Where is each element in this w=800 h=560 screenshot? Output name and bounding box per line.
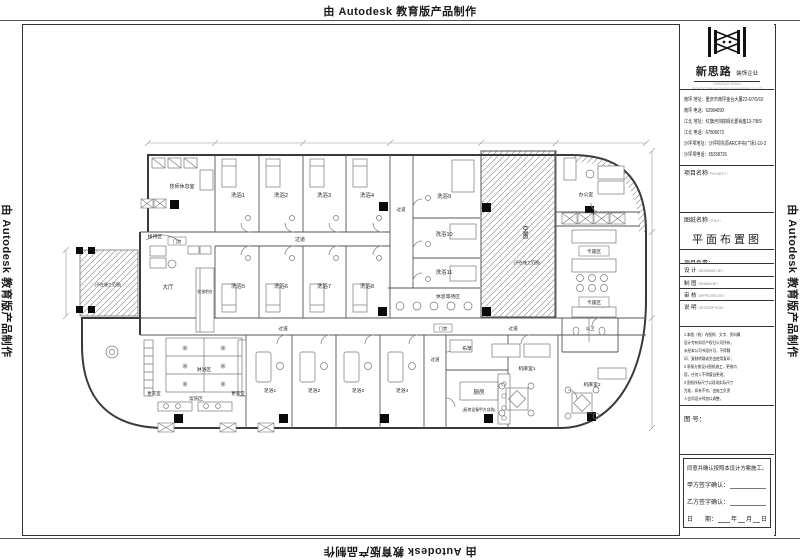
date-year-label: 年 [731,514,737,523]
date-line [718,515,730,523]
room-label-reception: 接待区 [148,233,163,240]
contact-line: 沙坪坝电话：65358726 [684,150,755,161]
note-line: 3 图纸所标尺寸以现场实际尺寸 [684,379,757,387]
drawn-by-row: 制 图 DRAWN BY： [680,277,774,289]
room-label-kitchen: 厨房 [473,388,485,396]
room-label-bath7: 洗浴7 [317,282,331,290]
corridor-label-main-left: 过道 [278,325,288,332]
room-label-cashier: 收银吧台 [197,289,212,294]
room-label-bath3: 洗浴3 [317,191,331,199]
project-name-label-en: PROJECT： [710,172,730,177]
party-a-label: 甲方签字确认： [687,480,729,489]
room-label-foot1: 足浴1 [264,387,277,394]
agreement-section: 同意并确认按照本设计方案施工。 甲方签字确认： 乙方签字确认： 日 期： 年 月… [680,455,774,536]
room-label-lobby: 大厅 [162,283,174,291]
approved-by-label: 审 核 [684,291,697,299]
note-line: 设计专有知识产权归公司所有， [684,339,757,347]
corridor-label-mid: 过道 [295,236,305,243]
room-label-booth2: 卡座区 [587,299,602,306]
note-line: 印、复制转载或交由使用复印； [684,355,757,363]
room-label-shower-area: 淋浴区 [197,366,212,373]
room-label-public-wc: 公卫 [586,326,595,331]
room-label-bath6: 洗浴6 [274,282,288,290]
room-label-foot2: 足浴2 [308,387,321,394]
project-name-section: 项目名称 PROJECT： [680,166,774,213]
date-day-label: 日 [761,514,767,523]
left-hatch-note: (不在施工范围) [95,281,122,287]
notes-section: 1 本图（构）内图例、文字、资料属 设计专有知识产权归公司所有， 未经本公司书面… [680,327,774,406]
company-name-row: 新思路 装饰企业 [694,62,760,82]
project-lead-row: 项目负责： [680,250,774,264]
access-label-1: 门禁 [173,238,181,245]
date-month-line [738,515,745,523]
room-label-bath2: 洗浴2 [274,191,288,199]
company-type: 装饰企业 [736,71,758,77]
contact-line: 南坪 地址：重庆市南坪金台大厦22-6/7/9/10 [684,95,755,106]
room-label-mahjong2: 机麻室2 [583,381,600,388]
kitchen-note: (厨房设备甲方自购) [463,407,497,412]
room-label-bath5: 洗浴5 [231,282,245,290]
corridor-label-small: 过道 [431,356,440,363]
contact-line: 南坪 电话：62984090 [684,106,755,117]
room-label-office: 办公室 [579,191,594,198]
company-logo-icon [708,27,746,57]
designed-by-row: 设 计 DESIGNED BY： [680,264,774,277]
room-label-booth1: 卡座区 [587,248,602,255]
drawing-title: 平面布置图 [684,231,770,247]
room-label-foot4: 足浴4 [396,387,409,394]
contact-line: 江北 电话：67806073 [684,128,755,139]
note-line: 容，任何人不得擅自更改； [684,371,757,379]
company-contacts-section: 南坪 地址：重庆市南坪金台大厦22-6/7/9/10 南坪 电话：6298409… [680,90,774,166]
drawing-title-section: 图纸名称 TITLE： 平面布置图 [680,213,774,250]
note-line: 2 承接方按设计图纸施工，更改内 [684,363,757,371]
corridor-label-main-right: 过道 [508,325,518,332]
description-label-en: DESCRIPTION： [699,306,726,311]
room-label-wash-area: 盥洗区 [189,395,203,402]
room-label-tech-rest: 技师休息室 [169,183,194,190]
date-label: 日 期： [687,514,717,523]
date-day-line [753,515,760,523]
room-label-bath11: 洗浴11 [436,268,453,276]
contact-line: 江北 地址：红旗河沟棕榈北郡尚座13-7/8/9 [684,117,755,128]
room-label-bath1: 洗浴1 [231,191,245,199]
partition-walls [140,150,646,428]
room-label-locker-left: 更衣室 [147,390,161,397]
party-a-signature-line [730,481,766,489]
date-month-label: 月 [746,514,752,523]
access-label-2: 门禁 [439,325,447,332]
drawn-by-label-en: DRAWN BY： [699,282,721,287]
party-b-signature-line [730,498,766,506]
approved-by-label-en: APPROVED BY： [699,294,728,299]
designed-by-label: 设 计 [684,266,697,274]
room-label-bath4: 洗浴4 [360,191,374,199]
room-label-foot3: 足浴3 [352,387,365,394]
note-line: 未经本公司书面许可，不得翻 [684,347,757,355]
project-name-label: 项目名称 [684,168,708,177]
corridor-label-vertical: 过道 [397,206,406,213]
drawing-title-label: 图纸名称 [684,215,708,224]
description-label: 说 明 [684,303,697,311]
room-label-bath10: 洗浴10 [435,230,452,238]
drawn-by-label: 制 图 [684,279,697,287]
title-block: 新思路 装饰企业 CHONGQING XINSILU ARCHITECTURE … [679,24,774,536]
room-label-locker-right: 更衣室 [231,390,245,397]
room-label-linen: 布草 [462,345,472,352]
note-line: 人会同设计师加以调整。 [684,395,757,403]
company-name: 新思路 [696,66,732,78]
designed-by-label-en: DESIGNED BY： [699,269,726,274]
room-label-bath9: 洗浴9 [437,192,451,200]
drawing-number-section: 图 号： [680,406,774,455]
party-b-label: 乙方签字确认： [687,497,729,506]
room-label-bath8: 洗浴8 [360,282,374,290]
note-line: 为准，如有不符，由施工负责 [684,387,757,395]
description-row: 说 明 DESCRIPTION： [680,301,774,327]
contact-line: 沙坪坝地址：沙坪坝东原ARC中央广场1-10-3 [684,139,755,150]
note-line: 1 本图（构）内图例、文字、资料属 [684,331,757,339]
room-label-waiting: 休息等待区 [436,293,460,300]
company-logo-section: 新思路 装饰企业 CHONGQING XINSILU ARCHITECTURE … [680,24,774,90]
approved-by-row: 审 核 APPROVED BY： [680,289,774,301]
drawing-number-label: 图 号： [684,416,705,423]
drawing-title-label-en: TITLE： [710,219,723,224]
agreement-box: 同意并确认按照本设计方案施工。 甲方签字确认： 乙方签字确认： 日 期： 年 月… [683,458,771,528]
agreement-text: 同意并确认按照本设计方案施工。 [687,463,761,472]
room-label-mahjong1: 机麻室1 [518,365,535,372]
vacant-note: (不在施工范围) [514,259,541,265]
